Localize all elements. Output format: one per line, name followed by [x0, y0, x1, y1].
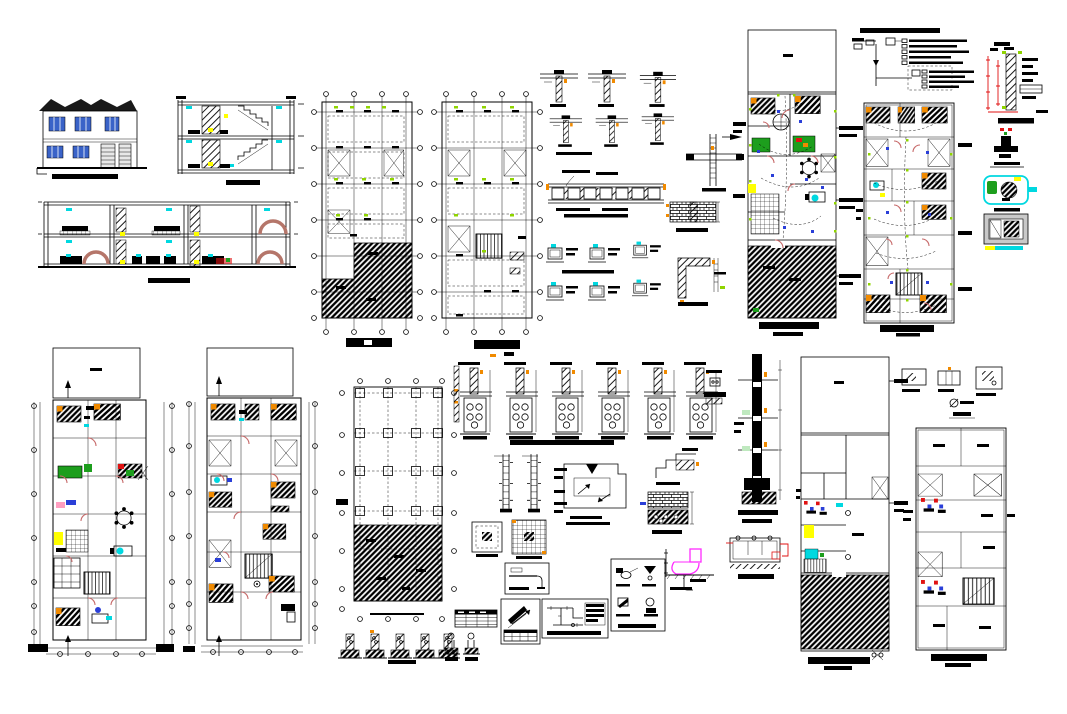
drawing-title-bar	[474, 340, 520, 357]
small-column-section-details	[441, 628, 481, 665]
drawing-title-bar	[148, 278, 190, 283]
parapet-wall-section-detail	[978, 40, 1060, 128]
drawing-title-bar	[226, 180, 260, 185]
ground-floor-electrical-plan	[733, 26, 869, 340]
drawing-title-bar	[388, 660, 416, 664]
drawing-title-bar	[880, 325, 934, 337]
drawing-title-bar	[566, 522, 610, 525]
shutter-doors	[101, 144, 131, 168]
rebar-schedule-table	[453, 608, 500, 630]
entry-arrow-bottom	[216, 635, 222, 642]
grid-rails	[187, 402, 318, 655]
toilet-section-detail	[662, 543, 718, 597]
drawing-title-bar	[995, 246, 1023, 250]
kitchen-tiles	[66, 530, 88, 552]
drawing-title-bar	[994, 208, 1020, 212]
drawing-title-bar	[759, 322, 819, 336]
north-arrow-and-table-box	[500, 598, 542, 646]
garden-hatch	[748, 246, 836, 318]
beam-marks	[336, 110, 399, 237]
stair-cross-section	[168, 94, 306, 188]
drawing-title-bar	[564, 214, 628, 218]
footings	[356, 389, 443, 516]
stair-flights	[238, 106, 268, 164]
stirrup-beam-details	[544, 238, 668, 312]
valve-assembly-detail	[986, 126, 1028, 170]
drawing-title-bar	[931, 654, 987, 667]
kitchen-tiles	[751, 194, 779, 234]
joists	[552, 188, 660, 199]
slab-framing-plan-1	[306, 86, 428, 358]
drawing-title-bar	[998, 118, 1034, 124]
masonry-wall-detail	[666, 198, 724, 238]
brick-footing-detail	[640, 488, 698, 540]
beam-tags	[334, 106, 394, 217]
footing-reinforcement-details	[454, 356, 736, 448]
drawing-title-bar	[52, 174, 118, 179]
drawing-title-bar	[808, 657, 870, 670]
breaker-rows	[895, 39, 969, 65]
drawing-sheet	[0, 0, 1067, 714]
footing-plan-details	[468, 516, 556, 563]
roof-drainage-diagram	[554, 450, 638, 532]
section-mark	[872, 650, 883, 660]
ground-floor-plumbing-plan	[796, 353, 910, 671]
beam-tags	[454, 106, 514, 253]
hatched-zone	[322, 243, 412, 318]
garden-hatch	[801, 575, 889, 649]
drawing-title-bar	[678, 302, 708, 306]
drawing-title-bar	[346, 338, 392, 347]
corner-column-plan-detail	[670, 252, 728, 310]
longitudinal-section	[36, 194, 300, 286]
lot-boundary	[53, 348, 140, 398]
pipe-elbow-framed-detail	[503, 561, 551, 599]
foundation-plan	[336, 373, 460, 629]
chimney-wall-section	[734, 350, 786, 532]
ground-floor-furnished-plan	[26, 346, 178, 664]
beam-column-connection-details	[536, 60, 682, 158]
panel-niche-detail	[980, 212, 1034, 254]
leader-labels	[1022, 58, 1048, 113]
water-meter-plan-detail	[978, 170, 1040, 214]
leader-callouts	[903, 510, 1015, 521]
sanitary-fixture-details-box	[610, 558, 667, 634]
red-dimensions	[986, 56, 1000, 110]
entry-arrow	[216, 376, 222, 384]
misc-beam-details-top-right	[898, 363, 1014, 415]
drawing-title-bar	[676, 228, 708, 232]
storage-shelves	[54, 558, 80, 588]
front-elevation	[35, 92, 155, 184]
breaker-rows-2	[922, 70, 974, 88]
roof	[39, 99, 137, 111]
upper-floor-electrical-plan	[856, 93, 974, 337]
leader-callouts	[796, 379, 908, 512]
hatched-zone	[354, 525, 442, 601]
septic-tank-section-detail	[724, 528, 794, 584]
lot-boundary	[207, 348, 293, 396]
pier-detail	[704, 370, 726, 404]
leader-labels	[554, 468, 567, 513]
drawing-title-bar	[738, 574, 774, 579]
drawing-title-bar	[510, 440, 614, 445]
drawing-title-bar	[738, 510, 778, 515]
drawing-title-bar	[652, 530, 682, 534]
joist-slab-section-detail	[544, 168, 668, 218]
drawing-title-bar	[702, 188, 726, 192]
slab-framing-plan-2	[426, 86, 548, 360]
parapet-step-detail	[650, 446, 704, 490]
electrical-riser-diagram	[852, 26, 980, 94]
entry-arrow-bottom	[65, 635, 71, 642]
entry-arrow	[65, 380, 71, 388]
upper-floor-furnished-plan	[183, 346, 323, 664]
beam-marks	[456, 110, 526, 317]
column-elevation-details	[490, 450, 554, 520]
drawing-title-bar	[370, 613, 424, 615]
water-piping-diagram-box	[541, 598, 609, 640]
drawing-title-bar	[547, 631, 601, 635]
upper-floor-plumbing-plan	[903, 410, 1015, 668]
drawing-title-bar	[618, 624, 656, 628]
